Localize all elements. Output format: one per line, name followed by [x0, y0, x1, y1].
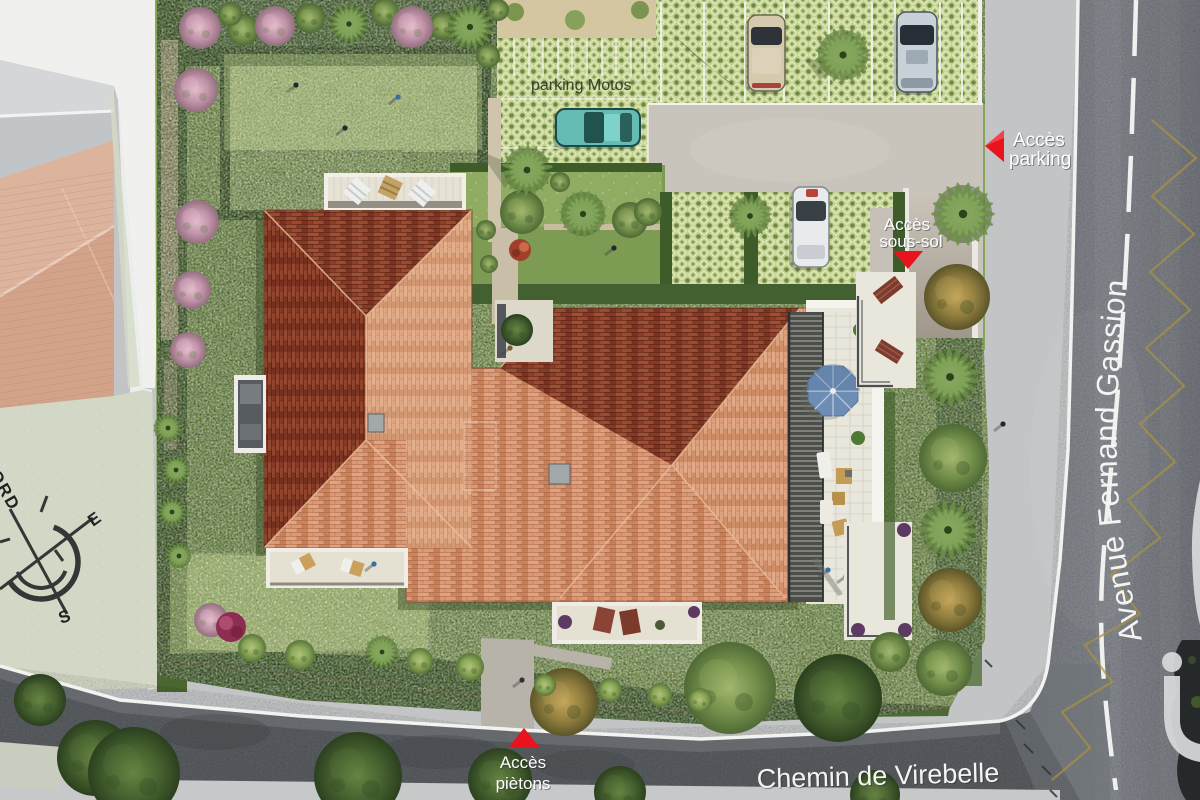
svg-text:parking Motos: parking Motos — [531, 77, 632, 94]
svg-text:sous-sol: sous-sol — [879, 232, 942, 251]
svg-text:parking: parking — [1009, 149, 1071, 170]
svg-text:Accès: Accès — [500, 753, 546, 772]
svg-text:piètons: piètons — [496, 774, 551, 793]
svg-text:Accès: Accès — [1013, 130, 1065, 151]
svg-text:Chemin de Virebelle: Chemin de Virebelle — [756, 758, 999, 794]
